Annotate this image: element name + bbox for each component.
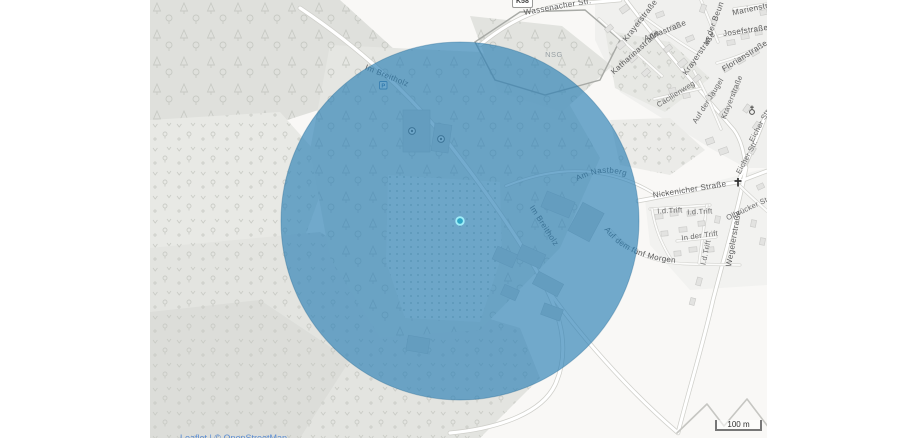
building [689,247,697,253]
building [759,238,765,246]
building [727,39,736,45]
scale-bar: 100 m [715,420,762,431]
area-label: NSG [545,50,563,59]
map-tiles: P Wassenacher Str. NSG Krayerstraße [150,0,767,438]
building [714,216,720,224]
map-attribution[interactable]: Leaflet | © OpenStreetMap [180,433,287,438]
building [698,221,705,227]
map-canvas[interactable]: P Wassenacher Str. NSG Krayerstraße [150,0,767,438]
building [679,227,687,233]
map-page: P Wassenacher Str. NSG Krayerstraße [0,0,920,438]
street-label: I.d.Trift [657,205,683,215]
building [750,220,756,228]
road-ref-badge: K58 [512,0,533,8]
building [674,251,681,257]
center-marker[interactable] [456,217,464,225]
building [661,231,668,237]
street-label: I.d.Trift [687,206,713,216]
